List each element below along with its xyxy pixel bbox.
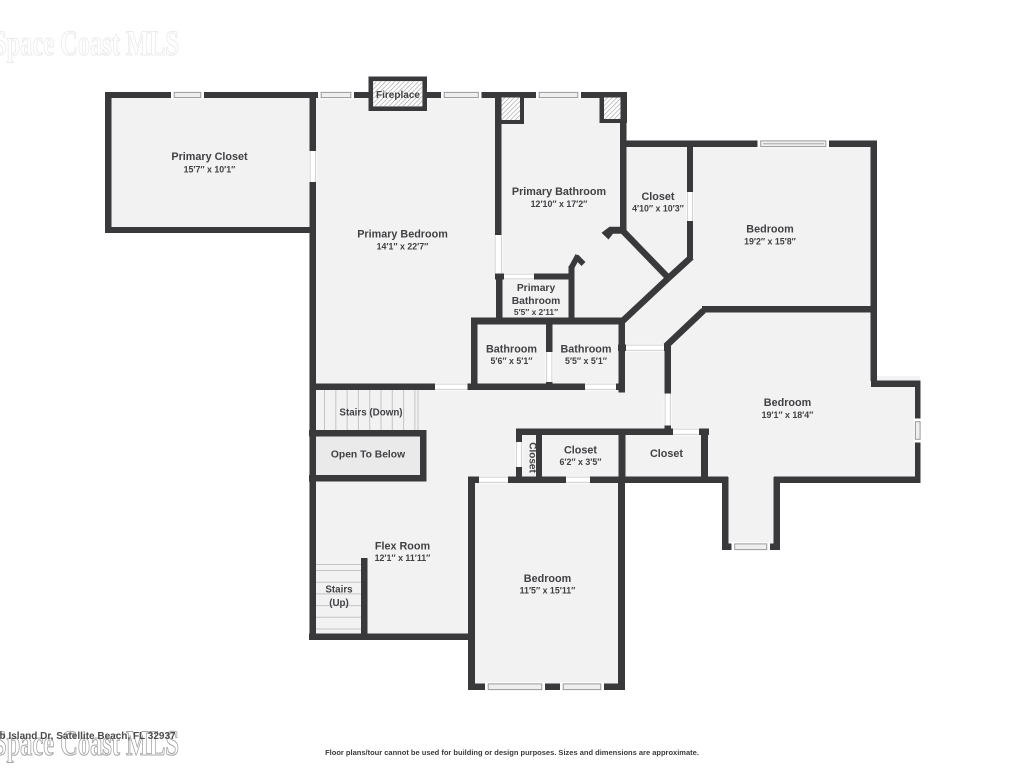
svg-text:14′1″ x 22′7″: 14′1″ x 22′7″ <box>377 242 430 252</box>
svg-text:Primary Bedroom: Primary Bedroom <box>357 229 448 241</box>
svg-text:Bedroom: Bedroom <box>524 573 571 585</box>
svg-text:Primary Bathroom: Primary Bathroom <box>512 186 606 198</box>
svg-text:Bedroom: Bedroom <box>764 397 811 409</box>
svg-text:5′5″ x 5′1″: 5′5″ x 5′1″ <box>565 356 608 366</box>
svg-text:6′2″ x 3′5″: 6′2″ x 3′5″ <box>560 457 603 467</box>
svg-text:Bathroom: Bathroom <box>512 296 561 307</box>
svg-text:Stairs: Stairs <box>325 585 353 596</box>
svg-text:Primary: Primary <box>517 283 556 294</box>
svg-text:12′10″ x 17′2″: 12′10″ x 17′2″ <box>531 199 588 209</box>
svg-text:Bedroom: Bedroom <box>746 224 793 236</box>
svg-text:12′1″ x 11′11″: 12′1″ x 11′11″ <box>375 553 431 563</box>
svg-text:11′5″ x 15′11″: 11′5″ x 15′11″ <box>520 586 576 596</box>
svg-text:Flex Room: Flex Room <box>375 541 430 553</box>
svg-text:Closet: Closet <box>564 445 597 457</box>
svg-text:sb Island Dr, Satellite Beach,: sb Island Dr, Satellite Beach, FL 32937 <box>0 731 176 742</box>
svg-text:Closet: Closet <box>650 448 683 460</box>
svg-text:Primary Closet: Primary Closet <box>171 151 248 163</box>
svg-text:(Up): (Up) <box>329 598 349 609</box>
svg-text:5′5″ x 2′11″: 5′5″ x 2′11″ <box>514 307 558 317</box>
svg-text:Fireplace: Fireplace <box>376 90 420 101</box>
svg-text:5′6″ x 5′1″: 5′6″ x 5′1″ <box>491 356 534 366</box>
svg-text:19′1″ x 18′4″: 19′1″ x 18′4″ <box>762 410 815 420</box>
svg-text:Space Coast MLS: Space Coast MLS <box>0 23 179 63</box>
svg-text:4′10″ x 10′3″: 4′10″ x 10′3″ <box>632 204 685 214</box>
svg-text:Bathroom: Bathroom <box>561 344 612 356</box>
svg-text:Open To Below: Open To Below <box>331 450 406 461</box>
svg-text:19′2″ x 15′8″: 19′2″ x 15′8″ <box>744 237 797 247</box>
svg-text:15′7″ x 10′1″: 15′7″ x 10′1″ <box>184 165 237 175</box>
svg-text:Bathroom: Bathroom <box>486 344 537 356</box>
svg-text:Stairs (Down): Stairs (Down) <box>339 408 402 419</box>
svg-text:Floor plans/tour cannot be use: Floor plans/tour cannot be used for buil… <box>325 748 699 757</box>
svg-text:Space Coast MLS: Space Coast MLS <box>0 723 179 763</box>
svg-text:Closet: Closet <box>527 442 538 473</box>
svg-text:Closet: Closet <box>642 191 675 203</box>
